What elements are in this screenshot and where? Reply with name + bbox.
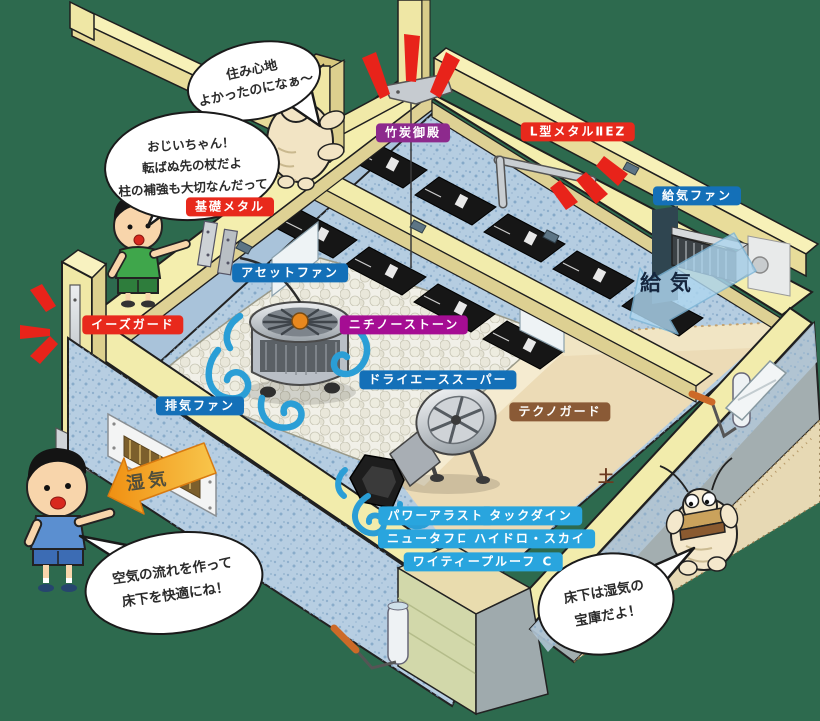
label-takesumi-goten[interactable]: 竹炭御殿	[376, 123, 450, 142]
label-asset-fan[interactable]: アセットファン	[232, 263, 348, 282]
label-ease-guard[interactable]: イーズガード	[82, 315, 183, 334]
speech-text: おじいちゃん！ 転ばぬ先の杖だよ 柱の補強も大切なんだって	[116, 130, 269, 201]
label-ytp-proof-c[interactable]: ワイティープルーフ C	[404, 552, 563, 571]
label-l-gata-metal-2ez[interactable]: L型メタルⅡEZ	[521, 122, 635, 141]
speech-text: 住み心地 よかったのになぁ〜	[193, 49, 316, 113]
speech-text: 空気の流れを作って 床下を快適にね！	[111, 551, 237, 616]
air-supply-text: 給気	[640, 267, 700, 297]
label-kiso-metal[interactable]: 基礎メタル	[186, 197, 274, 216]
label-techno-guard[interactable]: テクノガード	[509, 402, 610, 421]
soil-text: 土	[598, 463, 614, 487]
underfloor-ventilation-diagram: 竹炭御殿 L型メタルⅡEZ 基礎メタル 給気ファン アセットファン ニチノースト…	[0, 0, 820, 721]
speech-text: 床下は湿気の 宝庫だよ！	[562, 573, 650, 635]
label-power-arast[interactable]: パワーアラスト	[378, 506, 493, 525]
label-hydro-sky[interactable]: ハイドロ・スカイ	[465, 529, 595, 548]
label-haiki-fan[interactable]: 排気ファン	[156, 396, 244, 415]
label-kyuki-fan[interactable]: 給気ファン	[653, 186, 741, 205]
label-nichino-stone[interactable]: ニチノーストーン	[340, 315, 468, 334]
label-tack-dyne[interactable]: タックダイン	[480, 506, 582, 525]
label-dry-ace-super[interactable]: ドライエーススーパー	[359, 370, 516, 389]
